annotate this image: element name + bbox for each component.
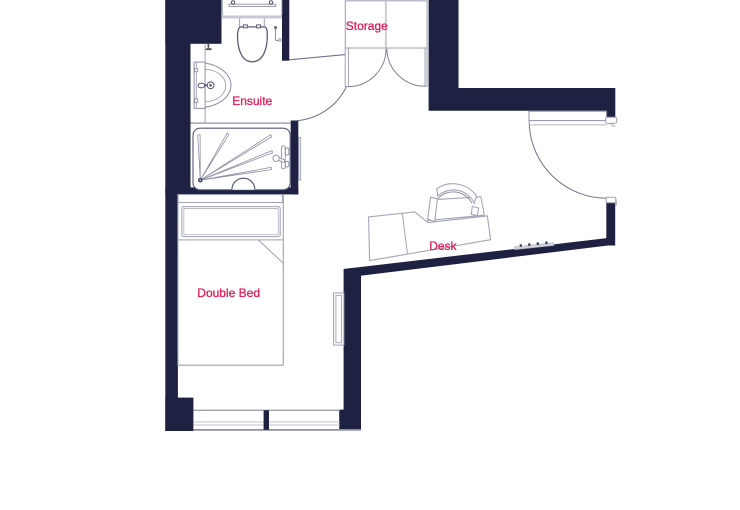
svg-text:Desk: Desk	[429, 239, 457, 253]
svg-text:Storage: Storage	[346, 19, 388, 33]
svg-text:Double Bed: Double Bed	[197, 286, 260, 300]
svg-text:Ensuite: Ensuite	[232, 94, 272, 108]
